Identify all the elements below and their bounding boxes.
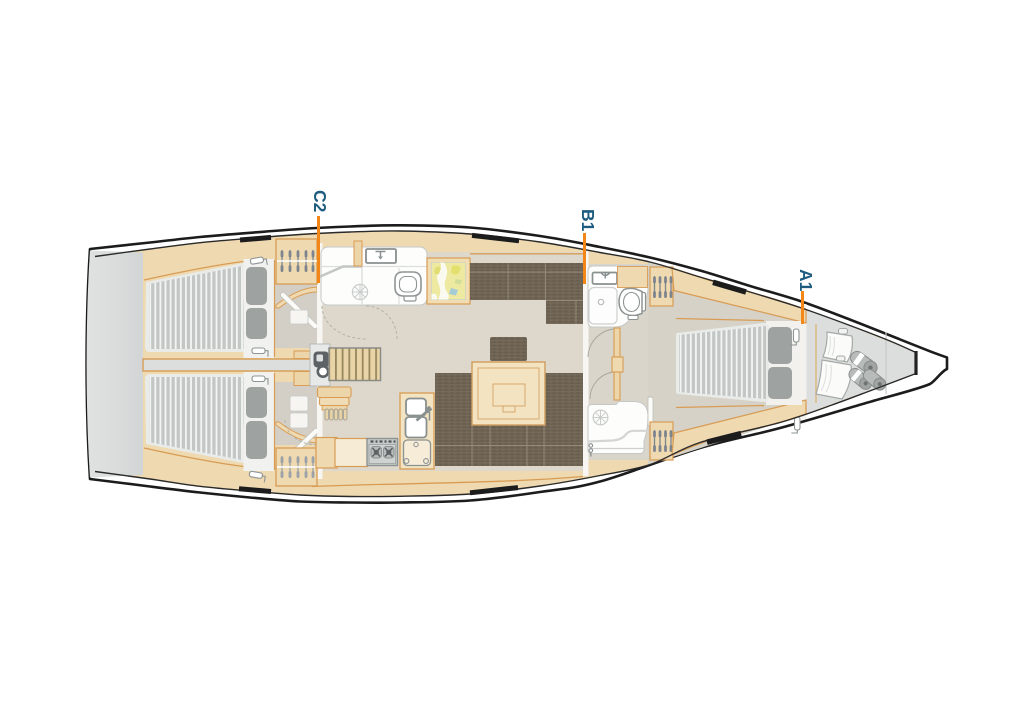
svg-text:C2: C2 <box>310 190 330 213</box>
svg-text:A1: A1 <box>796 269 816 292</box>
svg-text:B1: B1 <box>578 209 598 232</box>
